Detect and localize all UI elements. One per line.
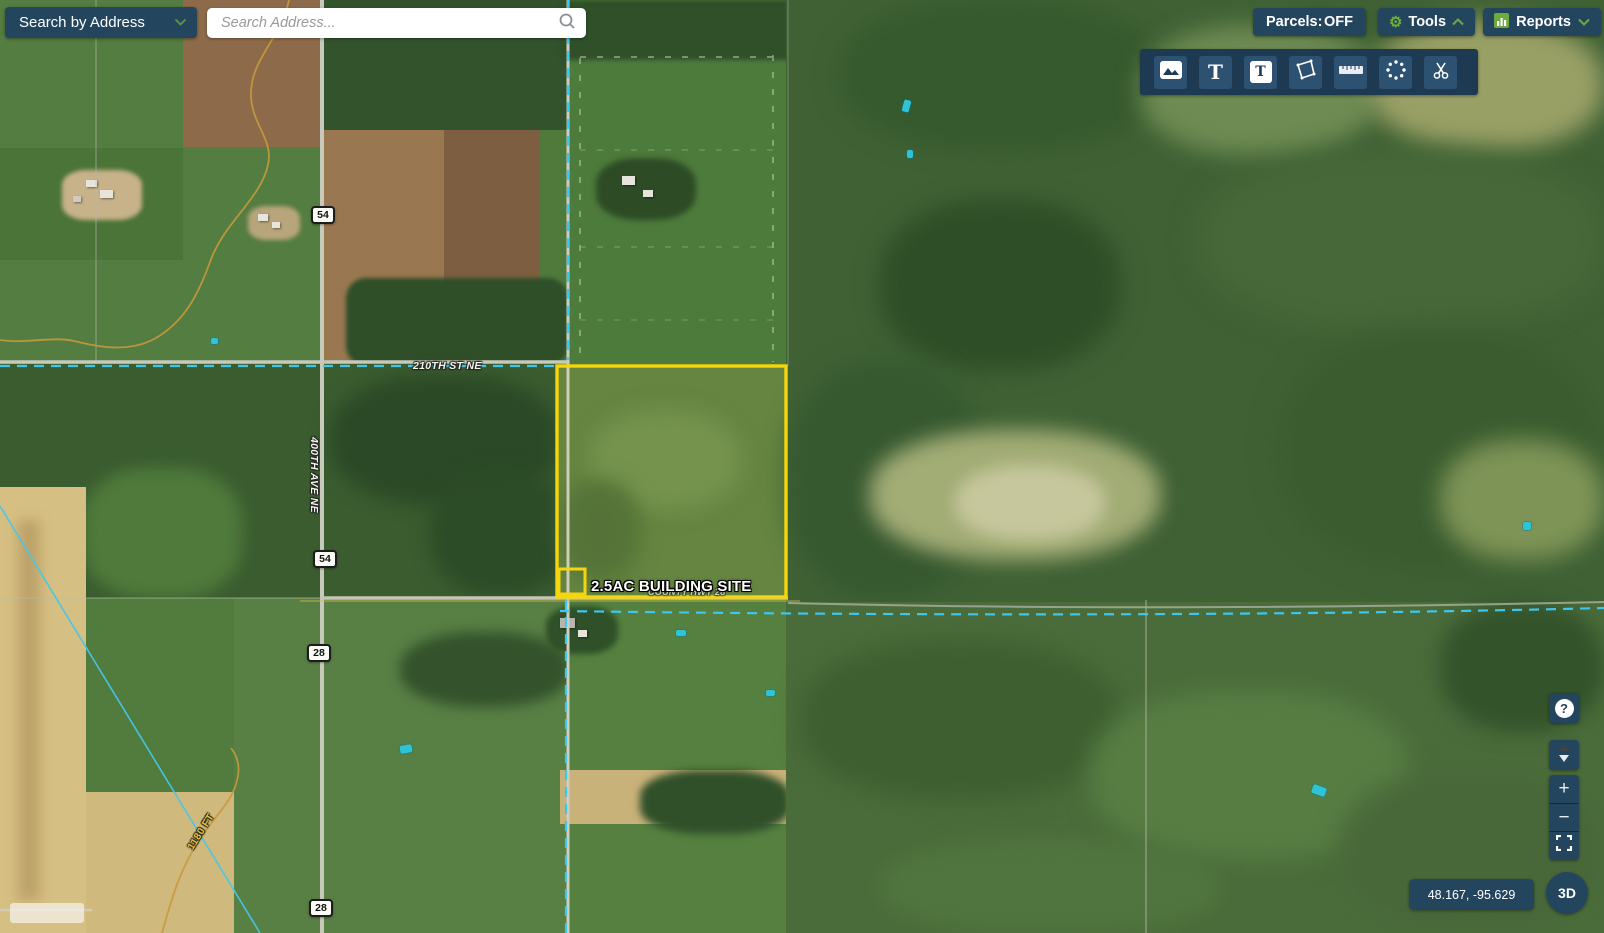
up-down-arrows-icon	[1556, 742, 1572, 769]
text-icon: T	[1208, 62, 1223, 82]
municipal-boundary-lines	[0, 0, 1604, 933]
field-marks	[580, 55, 773, 362]
search-mode-label: Search by Address	[19, 14, 145, 31]
map-canvas[interactable]: 210TH ST NE 400TH AVE NE COUNTY HWY 28 2…	[0, 0, 1604, 933]
highway-shield-54-south: 54	[313, 550, 337, 568]
view-3d-button[interactable]: 3D	[1546, 872, 1588, 914]
roads-layer	[0, 0, 1604, 933]
road-label-400th-ave: 400TH AVE NE	[308, 437, 320, 513]
measure-tool-button[interactable]	[1334, 56, 1367, 89]
fullscreen-button[interactable]	[1549, 831, 1579, 859]
image-icon	[1159, 60, 1183, 85]
chevron-down-icon	[174, 14, 187, 31]
image-tool-button[interactable]	[1154, 56, 1187, 89]
zoom-control: + −	[1549, 775, 1579, 860]
bar-chart-icon	[1494, 13, 1509, 32]
zoom-in-button[interactable]: +	[1549, 775, 1579, 803]
parcels-label: Parcels:	[1266, 14, 1322, 30]
dotted-circle-icon	[1385, 59, 1407, 86]
fullscreen-icon	[1556, 835, 1572, 857]
parcels-state: OFF	[1324, 14, 1353, 30]
highway-shield-54-north: 54	[311, 206, 335, 224]
polygon-icon	[1294, 58, 1318, 87]
reports-menu-button[interactable]: Reports	[1483, 8, 1601, 36]
search-icon[interactable]	[558, 12, 576, 35]
logo-watermark	[10, 903, 84, 923]
parcel-boundary[interactable]	[557, 366, 786, 597]
highway-shield-28-bottom: 28	[309, 899, 333, 917]
cursor-coordinates: 48.167, -95.629	[1409, 879, 1534, 910]
polygon-tool-button[interactable]	[1289, 56, 1322, 89]
text-box-icon: T	[1250, 61, 1272, 83]
cut-tool-button[interactable]	[1424, 56, 1457, 89]
tools-menu-button[interactable]: ⚙ Tools	[1378, 8, 1475, 36]
tools-label: Tools	[1408, 14, 1446, 30]
zoom-out-button[interactable]: −	[1549, 803, 1579, 831]
scissors-icon	[1431, 60, 1451, 85]
parcel-layer	[557, 366, 786, 597]
help-button[interactable]: ?	[1549, 693, 1579, 723]
address-search-box[interactable]	[207, 8, 586, 38]
gear-icon: ⚙	[1389, 15, 1402, 30]
text-tool-button[interactable]: T	[1199, 56, 1232, 89]
building-site-label: 2.5AC BUILDING SITE	[591, 578, 752, 595]
search-input[interactable]	[219, 14, 558, 32]
question-mark-icon: ?	[1555, 699, 1574, 718]
reports-label: Reports	[1516, 14, 1571, 30]
circle-select-tool-button[interactable]	[1379, 56, 1412, 89]
road-label-210th-st: 210TH ST NE	[413, 360, 482, 372]
parcels-toggle-button[interactable]: Parcels: OFF	[1253, 8, 1366, 36]
ruler-icon	[1338, 63, 1364, 81]
text-box-tool-button[interactable]: T	[1244, 56, 1277, 89]
highway-shield-28: 28	[307, 644, 331, 662]
chevron-down-icon	[1578, 14, 1590, 30]
search-mode-dropdown[interactable]: Search by Address	[5, 7, 197, 38]
chevron-up-icon	[1452, 14, 1464, 30]
layer-collapse-button[interactable]	[1549, 740, 1579, 770]
drawing-toolbar: T T	[1140, 49, 1478, 95]
